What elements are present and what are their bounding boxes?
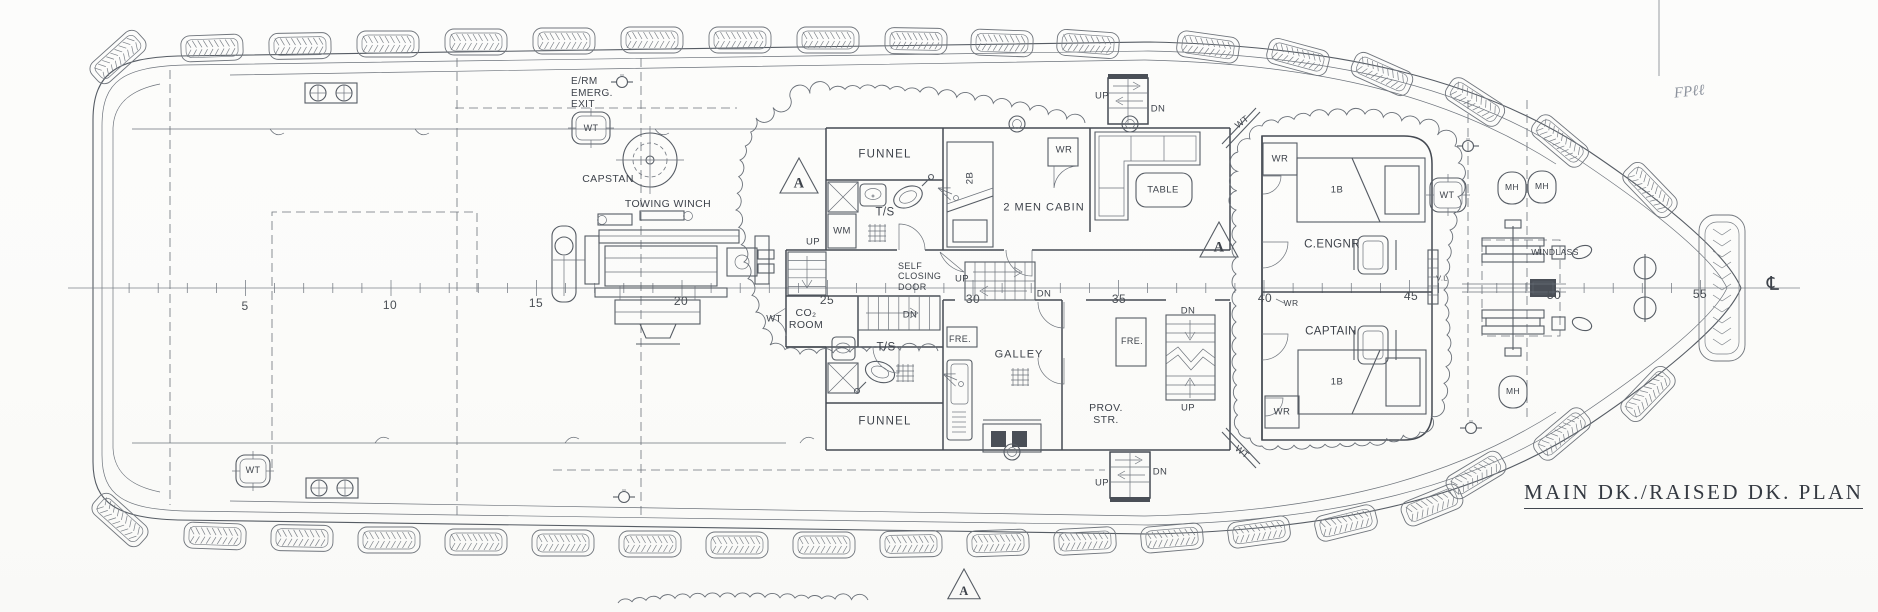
galley-label: GALLEY bbox=[995, 349, 1044, 362]
vertical-ladder-label: V.L bbox=[1436, 275, 1448, 284]
station-45: 45 bbox=[1404, 290, 1418, 304]
dn-ext-top-label: DN bbox=[1151, 103, 1166, 114]
bed-1b-bottom-label: 1B bbox=[1331, 376, 1343, 387]
ts-bottom-label: T/S bbox=[876, 341, 895, 354]
station-30: 30 bbox=[966, 293, 980, 307]
towing-winch-label: TOWING WINCH bbox=[625, 198, 711, 210]
erm-emerg-exit-label: E/RM EMERG. EXIT bbox=[571, 76, 613, 111]
station-35: 35 bbox=[1112, 293, 1126, 307]
windlass-label: WINDLASS bbox=[1531, 248, 1579, 258]
up-galley-stair-label: UP bbox=[955, 273, 969, 284]
bed-1b-top-label: 1B bbox=[1331, 184, 1343, 195]
up-prov-stair-label: UP bbox=[1181, 402, 1195, 413]
dn-galley-stair-label: DN bbox=[1037, 288, 1052, 299]
section-marker-1: A bbox=[794, 175, 805, 192]
dn-central-stair-label: DN bbox=[903, 309, 918, 320]
fre-prov-label: FRE. bbox=[1121, 336, 1143, 346]
station-40: 40 bbox=[1258, 292, 1272, 306]
wt-fore-hatch-label: WT bbox=[1440, 190, 1455, 200]
wr-2men-label: WR bbox=[1056, 144, 1073, 155]
up-ext-top-label: UP bbox=[1095, 90, 1109, 101]
self-closing-door-label: SELF CLOSING DOOR bbox=[898, 261, 941, 292]
chief-engineer-cabin-label: C.ENGNR bbox=[1304, 238, 1360, 251]
station-10: 10 bbox=[383, 299, 397, 313]
wr-mid-label: WR bbox=[1284, 299, 1299, 309]
bunk-2b-label: 2B bbox=[964, 172, 975, 184]
fre-galley-label: FRE. bbox=[949, 334, 971, 344]
co2-room-label: CO₂ ROOM bbox=[789, 307, 823, 331]
station-5: 5 bbox=[241, 300, 248, 314]
wm-label: WM bbox=[833, 225, 851, 236]
section-marker-3: A bbox=[959, 584, 968, 598]
wt-co2-door-label: WT bbox=[766, 313, 782, 324]
captain-cabin-label: CAPTAIN bbox=[1305, 325, 1357, 338]
station-55: 55 bbox=[1693, 288, 1707, 302]
manhole-3-label: MH bbox=[1506, 387, 1520, 397]
dn-ext-bottom-label: DN bbox=[1153, 466, 1168, 477]
wr-fore-bottom-label: WR bbox=[1274, 406, 1291, 417]
two-men-cabin-label: 2 MEN CABIN bbox=[1003, 202, 1084, 215]
manhole-2-label: MH bbox=[1535, 182, 1549, 192]
up-boatdeck-stair-label: UP bbox=[806, 236, 820, 247]
centerline-symbol: ℄ bbox=[1767, 274, 1780, 296]
table-label: TABLE bbox=[1147, 184, 1178, 195]
capstan-label: CAPSTAN bbox=[582, 173, 634, 185]
deck-plan-drawing bbox=[0, 0, 1878, 612]
dn-prov-stair-label: DN bbox=[1181, 305, 1196, 316]
ts-top-label: T/S bbox=[875, 206, 894, 219]
deck-plan-sheet: AAAE/RM EMERG. EXITWTCAPSTANTOWING WINCH… bbox=[0, 0, 1878, 612]
funnel-top-label: FUNNEL bbox=[858, 148, 911, 161]
wr-fore-top-label: WR bbox=[1272, 153, 1289, 164]
wt-stern-top-hatch-label: WT bbox=[584, 123, 599, 133]
funnel-bottom-label: FUNNEL bbox=[858, 415, 911, 428]
manhole-1-label: MH bbox=[1505, 183, 1519, 193]
drawing-title: MAIN DK./RAISED DK. PLAN bbox=[1524, 480, 1863, 509]
section-marker-2: A bbox=[1214, 239, 1225, 256]
station-20: 20 bbox=[674, 295, 688, 309]
station-15: 15 bbox=[529, 297, 543, 311]
up-ext-bottom-label: UP bbox=[1095, 477, 1109, 488]
handwritten-fp-note: FPℓℓ bbox=[1673, 82, 1705, 102]
station-50: 50 bbox=[1547, 289, 1561, 303]
prov-str-label: PROV. STR. bbox=[1089, 402, 1123, 426]
wt-stern-bottom-hatch-label: WT bbox=[246, 465, 261, 475]
station-25: 25 bbox=[820, 294, 834, 308]
